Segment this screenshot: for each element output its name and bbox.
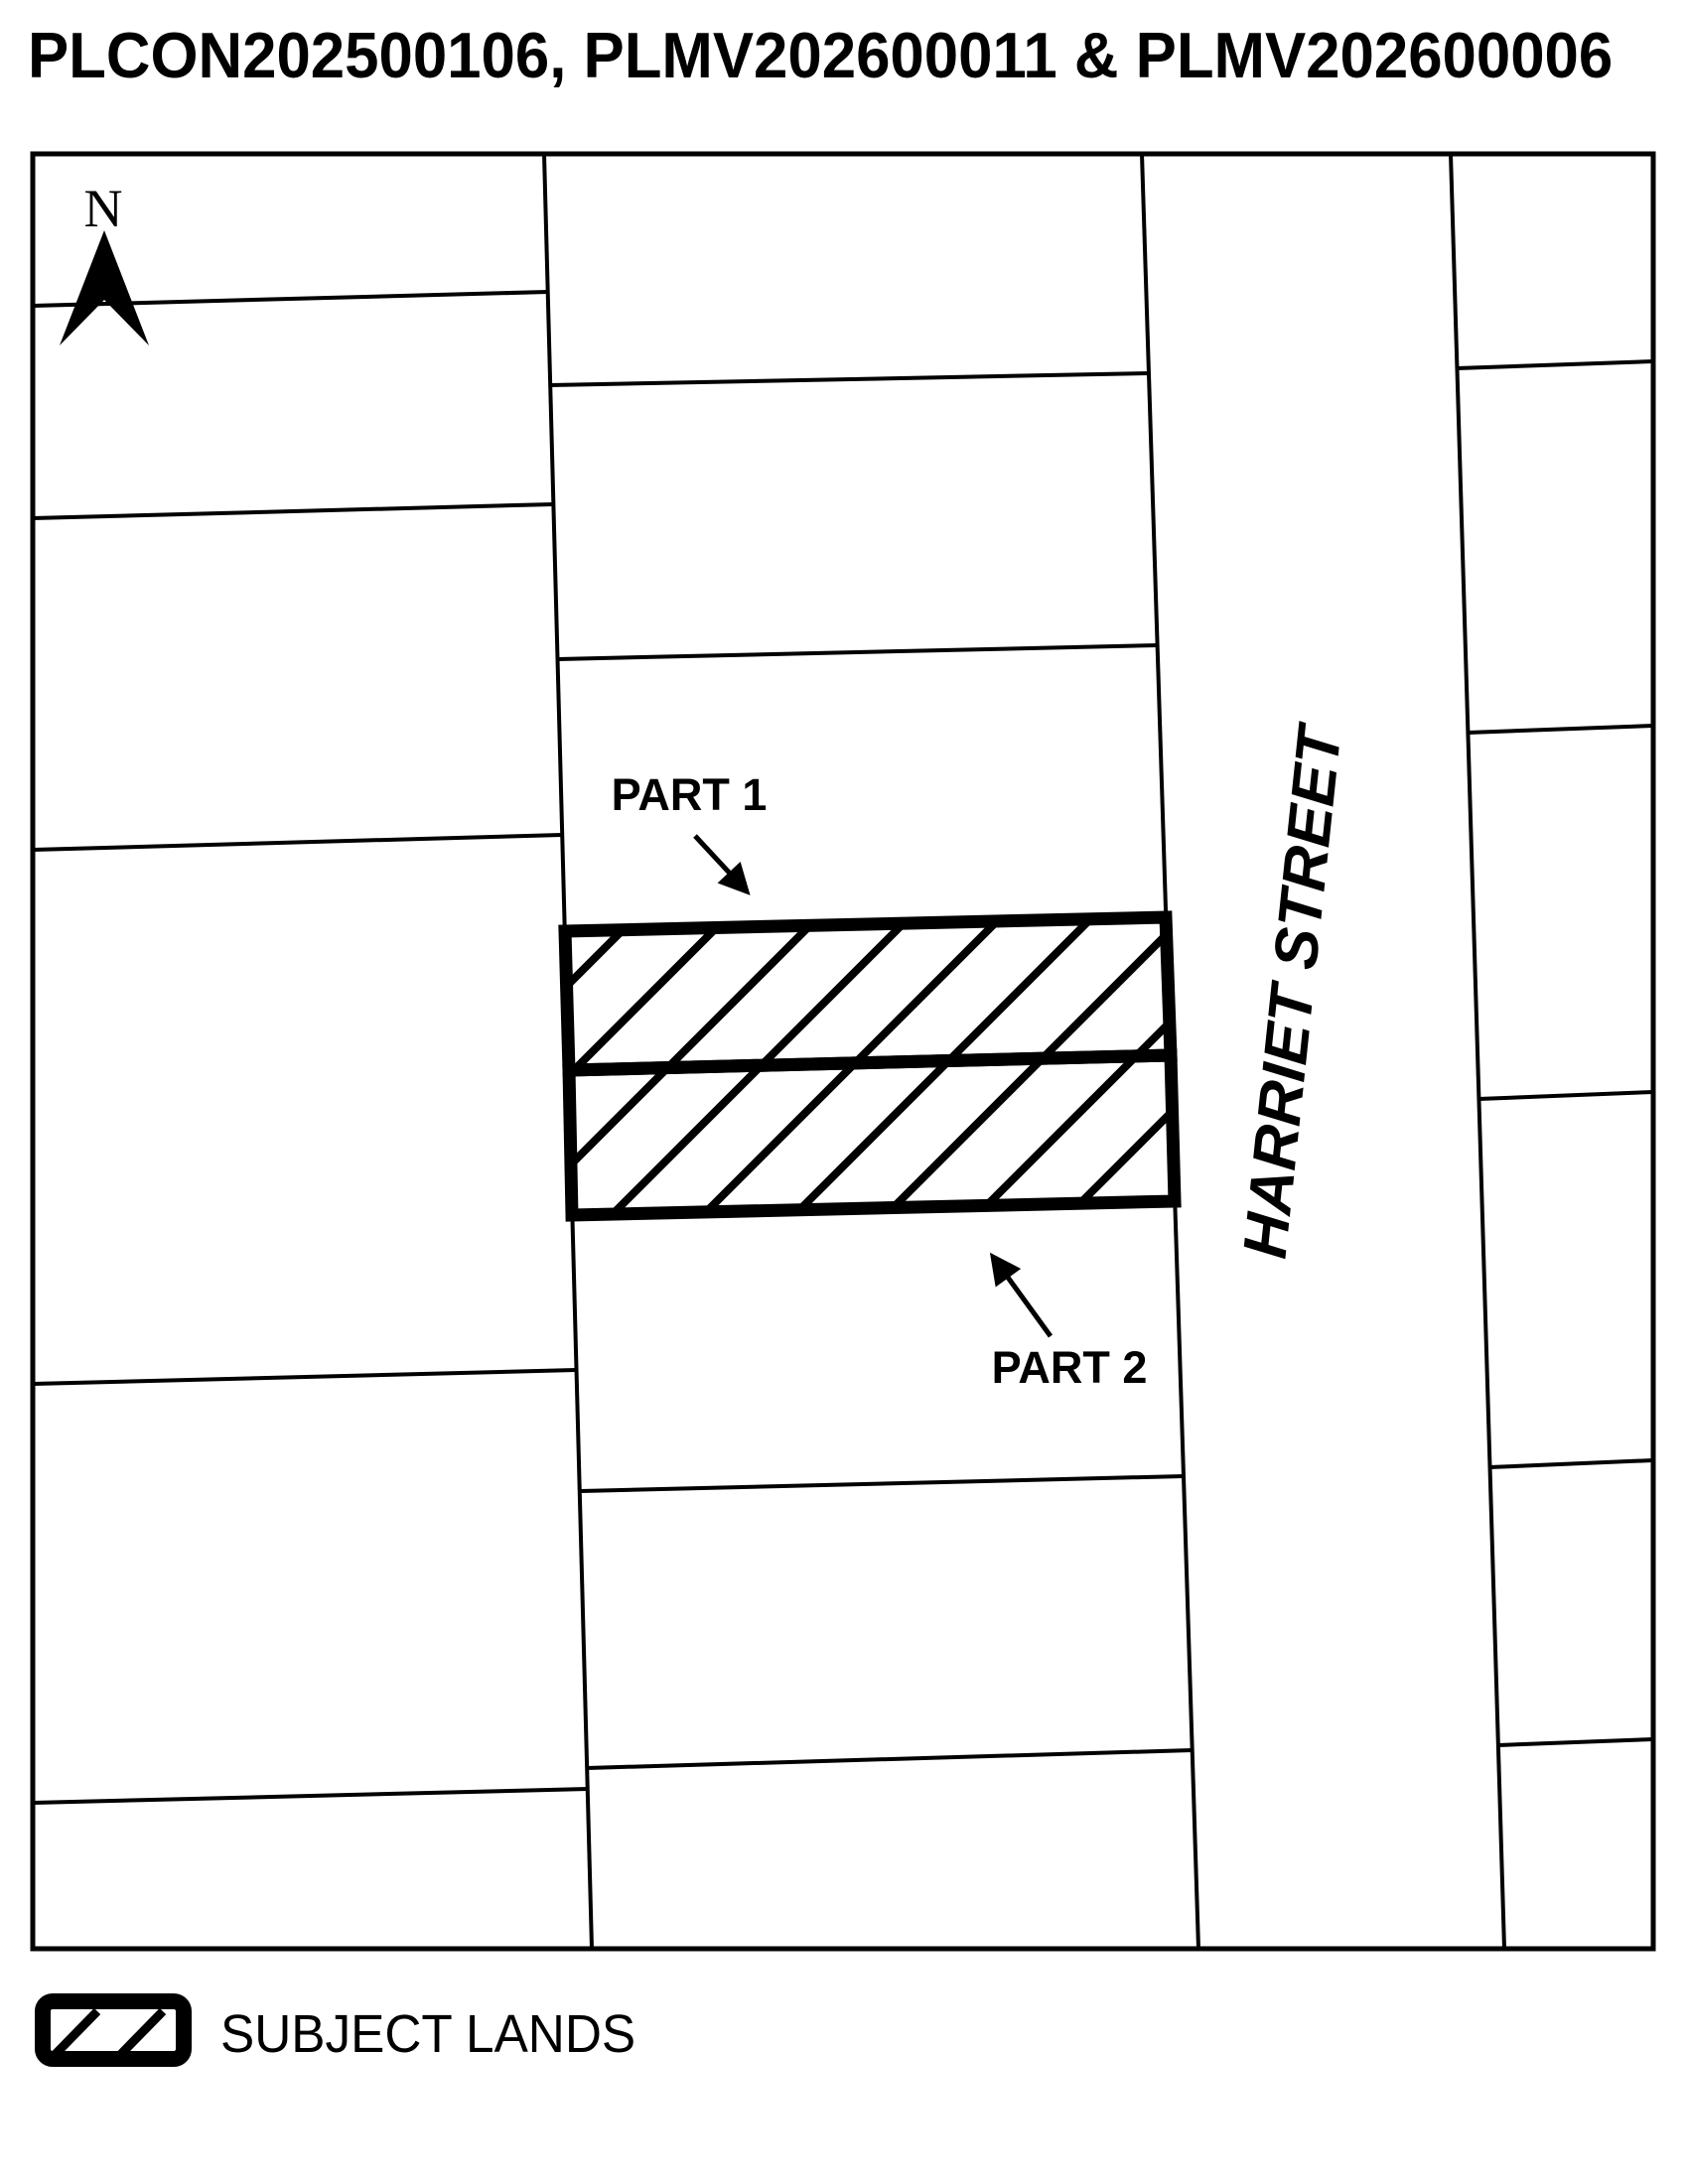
subject-lands-part1 bbox=[565, 917, 1171, 1070]
site-plan-page: PLCON202500106, PLMV202600011 & PLMV2026… bbox=[0, 0, 1688, 2184]
north-label: N bbox=[84, 179, 123, 238]
subject-lands-part2 bbox=[569, 1055, 1175, 1215]
part1-label: PART 1 bbox=[612, 769, 768, 820]
subject-lands bbox=[565, 917, 1175, 1215]
legend-label: SUBJECT LANDS bbox=[220, 2003, 635, 2065]
map-canvas: PART 1 PART 2 HARRIET STREET N bbox=[0, 0, 1688, 2184]
part2-label: PART 2 bbox=[992, 1342, 1148, 1393]
